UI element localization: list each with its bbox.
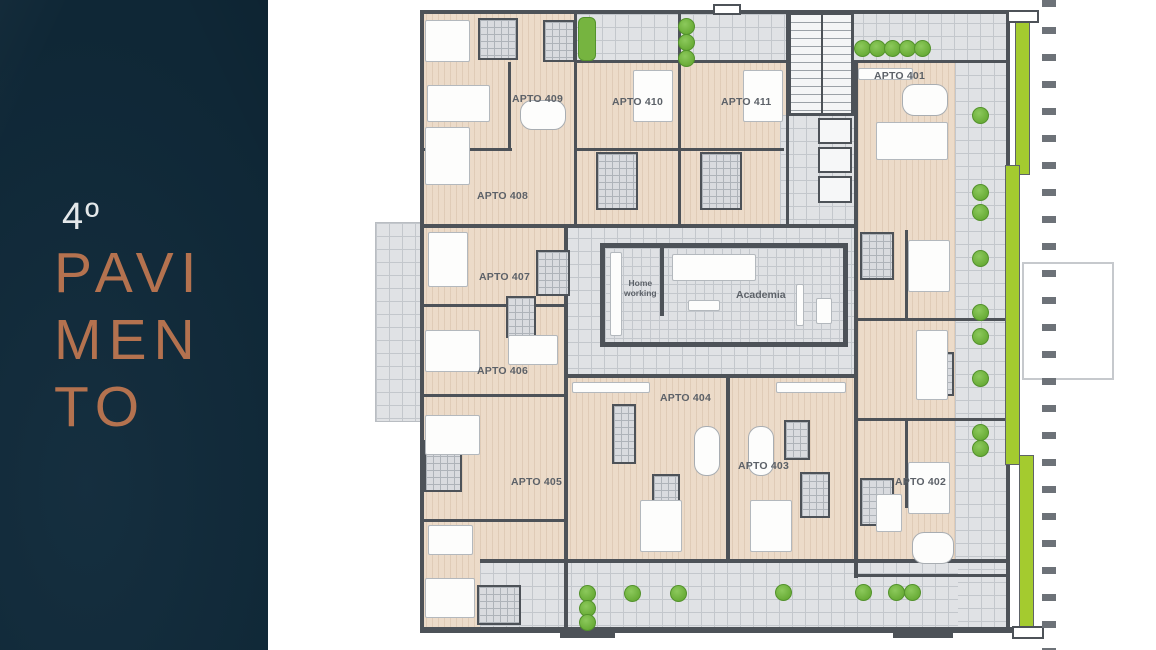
green-strip-segment: [1019, 455, 1034, 630]
hedge-icon: [578, 17, 596, 61]
wall: [560, 631, 615, 638]
boundary-dashed-line: [1042, 0, 1056, 650]
tree-icon: [579, 614, 596, 631]
tree-icon: [972, 370, 989, 387]
gym-equipment: [796, 284, 804, 326]
furniture-bed: [425, 20, 470, 62]
tree-icon: [678, 18, 695, 35]
right-terrace: [955, 62, 1010, 630]
bathroom-block: [506, 296, 536, 338]
apartment-label-408: APTO 408: [477, 190, 528, 202]
bathroom-block: [543, 20, 575, 62]
tree-icon: [670, 585, 687, 602]
furniture-sofa: [876, 494, 902, 532]
tree-icon: [972, 204, 989, 221]
furniture-kitchen-counter: [776, 382, 846, 393]
wall: [576, 148, 679, 151]
furniture-sofa: [750, 500, 792, 552]
apartment-label-411: APTO 411: [721, 96, 771, 108]
wall: [420, 224, 858, 228]
wall: [564, 374, 858, 378]
tree-icon: [972, 304, 989, 321]
neighbor-lot-outline: [1022, 262, 1114, 380]
wall: [420, 394, 566, 397]
home-working-line-1: Home: [624, 278, 657, 288]
floor-title: PAVI MEN TO: [54, 240, 203, 441]
apartment-label-404: APTO 404: [660, 392, 711, 404]
bathroom-block: [477, 585, 521, 625]
tree-icon: [972, 184, 989, 201]
wall: [681, 148, 784, 151]
floor-number: 4º: [62, 196, 101, 239]
apartment-label-401: APTO 401: [874, 70, 925, 82]
home-working-line-2: working: [624, 288, 657, 298]
furniture-sofa: [640, 500, 682, 552]
furniture-sofa: [876, 122, 948, 160]
staircase: [788, 12, 854, 116]
bathroom-block: [860, 232, 894, 280]
gym-equipment: [688, 300, 720, 311]
wall: [660, 246, 664, 316]
tree-icon: [855, 584, 872, 601]
elevator-cell: [818, 176, 852, 203]
furniture-bed: [908, 240, 950, 292]
furniture-bed: [428, 232, 468, 287]
tree-icon: [624, 585, 641, 602]
strip-end-cap: [1007, 10, 1039, 23]
elevator-cell: [818, 118, 852, 144]
wall: [420, 10, 424, 631]
green-strip-segment: [1005, 165, 1020, 465]
left-terrace: [375, 222, 422, 422]
tree-icon: [888, 584, 905, 601]
apartment-label-405: APTO 405: [511, 476, 562, 488]
apartment-label-402: APTO 402: [895, 476, 946, 488]
wall: [893, 631, 953, 638]
green-strip-segment: [1015, 20, 1030, 175]
bathroom-block: [700, 152, 742, 210]
wall: [854, 418, 1006, 421]
wall: [508, 62, 511, 151]
furniture-table: [508, 335, 558, 365]
tree-icon: [972, 328, 989, 345]
tree-icon: [972, 424, 989, 441]
gym-equipment: [816, 298, 832, 324]
furniture-bed: [425, 578, 475, 618]
home-working-label: Home working: [624, 278, 657, 298]
tree-icon: [904, 584, 921, 601]
furniture-bed: [425, 415, 480, 455]
wall: [420, 304, 566, 307]
wall: [726, 374, 730, 562]
tree-icon: [678, 34, 695, 51]
furniture-bed: [425, 127, 470, 185]
parapet-marker: [713, 4, 741, 15]
wall: [854, 574, 1010, 577]
apartment-label-403: APTO 403: [738, 460, 789, 472]
tree-icon: [775, 584, 792, 601]
bathroom-block: [478, 18, 518, 60]
bathroom-block: [784, 420, 810, 460]
floor-title-line-3: TO: [54, 374, 203, 441]
floor-title-line-2: MEN: [54, 307, 203, 374]
gym-equipment: [672, 254, 756, 281]
furniture-bed: [425, 330, 480, 372]
furniture-bed: [428, 525, 473, 555]
bottom-balcony: [480, 560, 958, 628]
apartment-label-406: APTO 406: [477, 365, 528, 377]
apartment-label-407: APTO 407: [479, 271, 530, 283]
furniture-dining-table: [694, 426, 720, 476]
bathroom-block: [596, 152, 638, 210]
furniture-wardrobe: [916, 330, 948, 400]
wall: [854, 60, 1010, 63]
apartment-label-410: APTO 410: [612, 96, 663, 108]
tree-icon: [972, 440, 989, 457]
elevator-cell: [818, 147, 852, 173]
wall: [420, 519, 566, 522]
academia-label: Academia: [736, 289, 786, 301]
apartment-label-409: APTO 409: [512, 93, 563, 105]
bathroom-block: [612, 404, 636, 464]
bathroom-block: [800, 472, 830, 518]
floorplan-page: 4º PAVI MEN TO: [0, 0, 1156, 650]
tree-icon: [678, 50, 695, 67]
furniture-dining-table: [902, 84, 948, 116]
bathroom-block: [536, 250, 570, 296]
tree-icon: [972, 107, 989, 124]
tree-icon: [914, 40, 931, 57]
tree-icon: [972, 250, 989, 267]
furniture-sofa: [427, 85, 490, 122]
strip-end-cap: [1012, 626, 1044, 639]
furniture-dining-table: [912, 532, 954, 564]
left-brand-panel: 4º PAVI MEN TO: [0, 0, 268, 650]
desk-column: [610, 252, 622, 336]
furniture-kitchen-counter: [572, 382, 650, 393]
floor-title-line-1: PAVI: [54, 240, 203, 307]
furniture-bed: [908, 462, 950, 514]
